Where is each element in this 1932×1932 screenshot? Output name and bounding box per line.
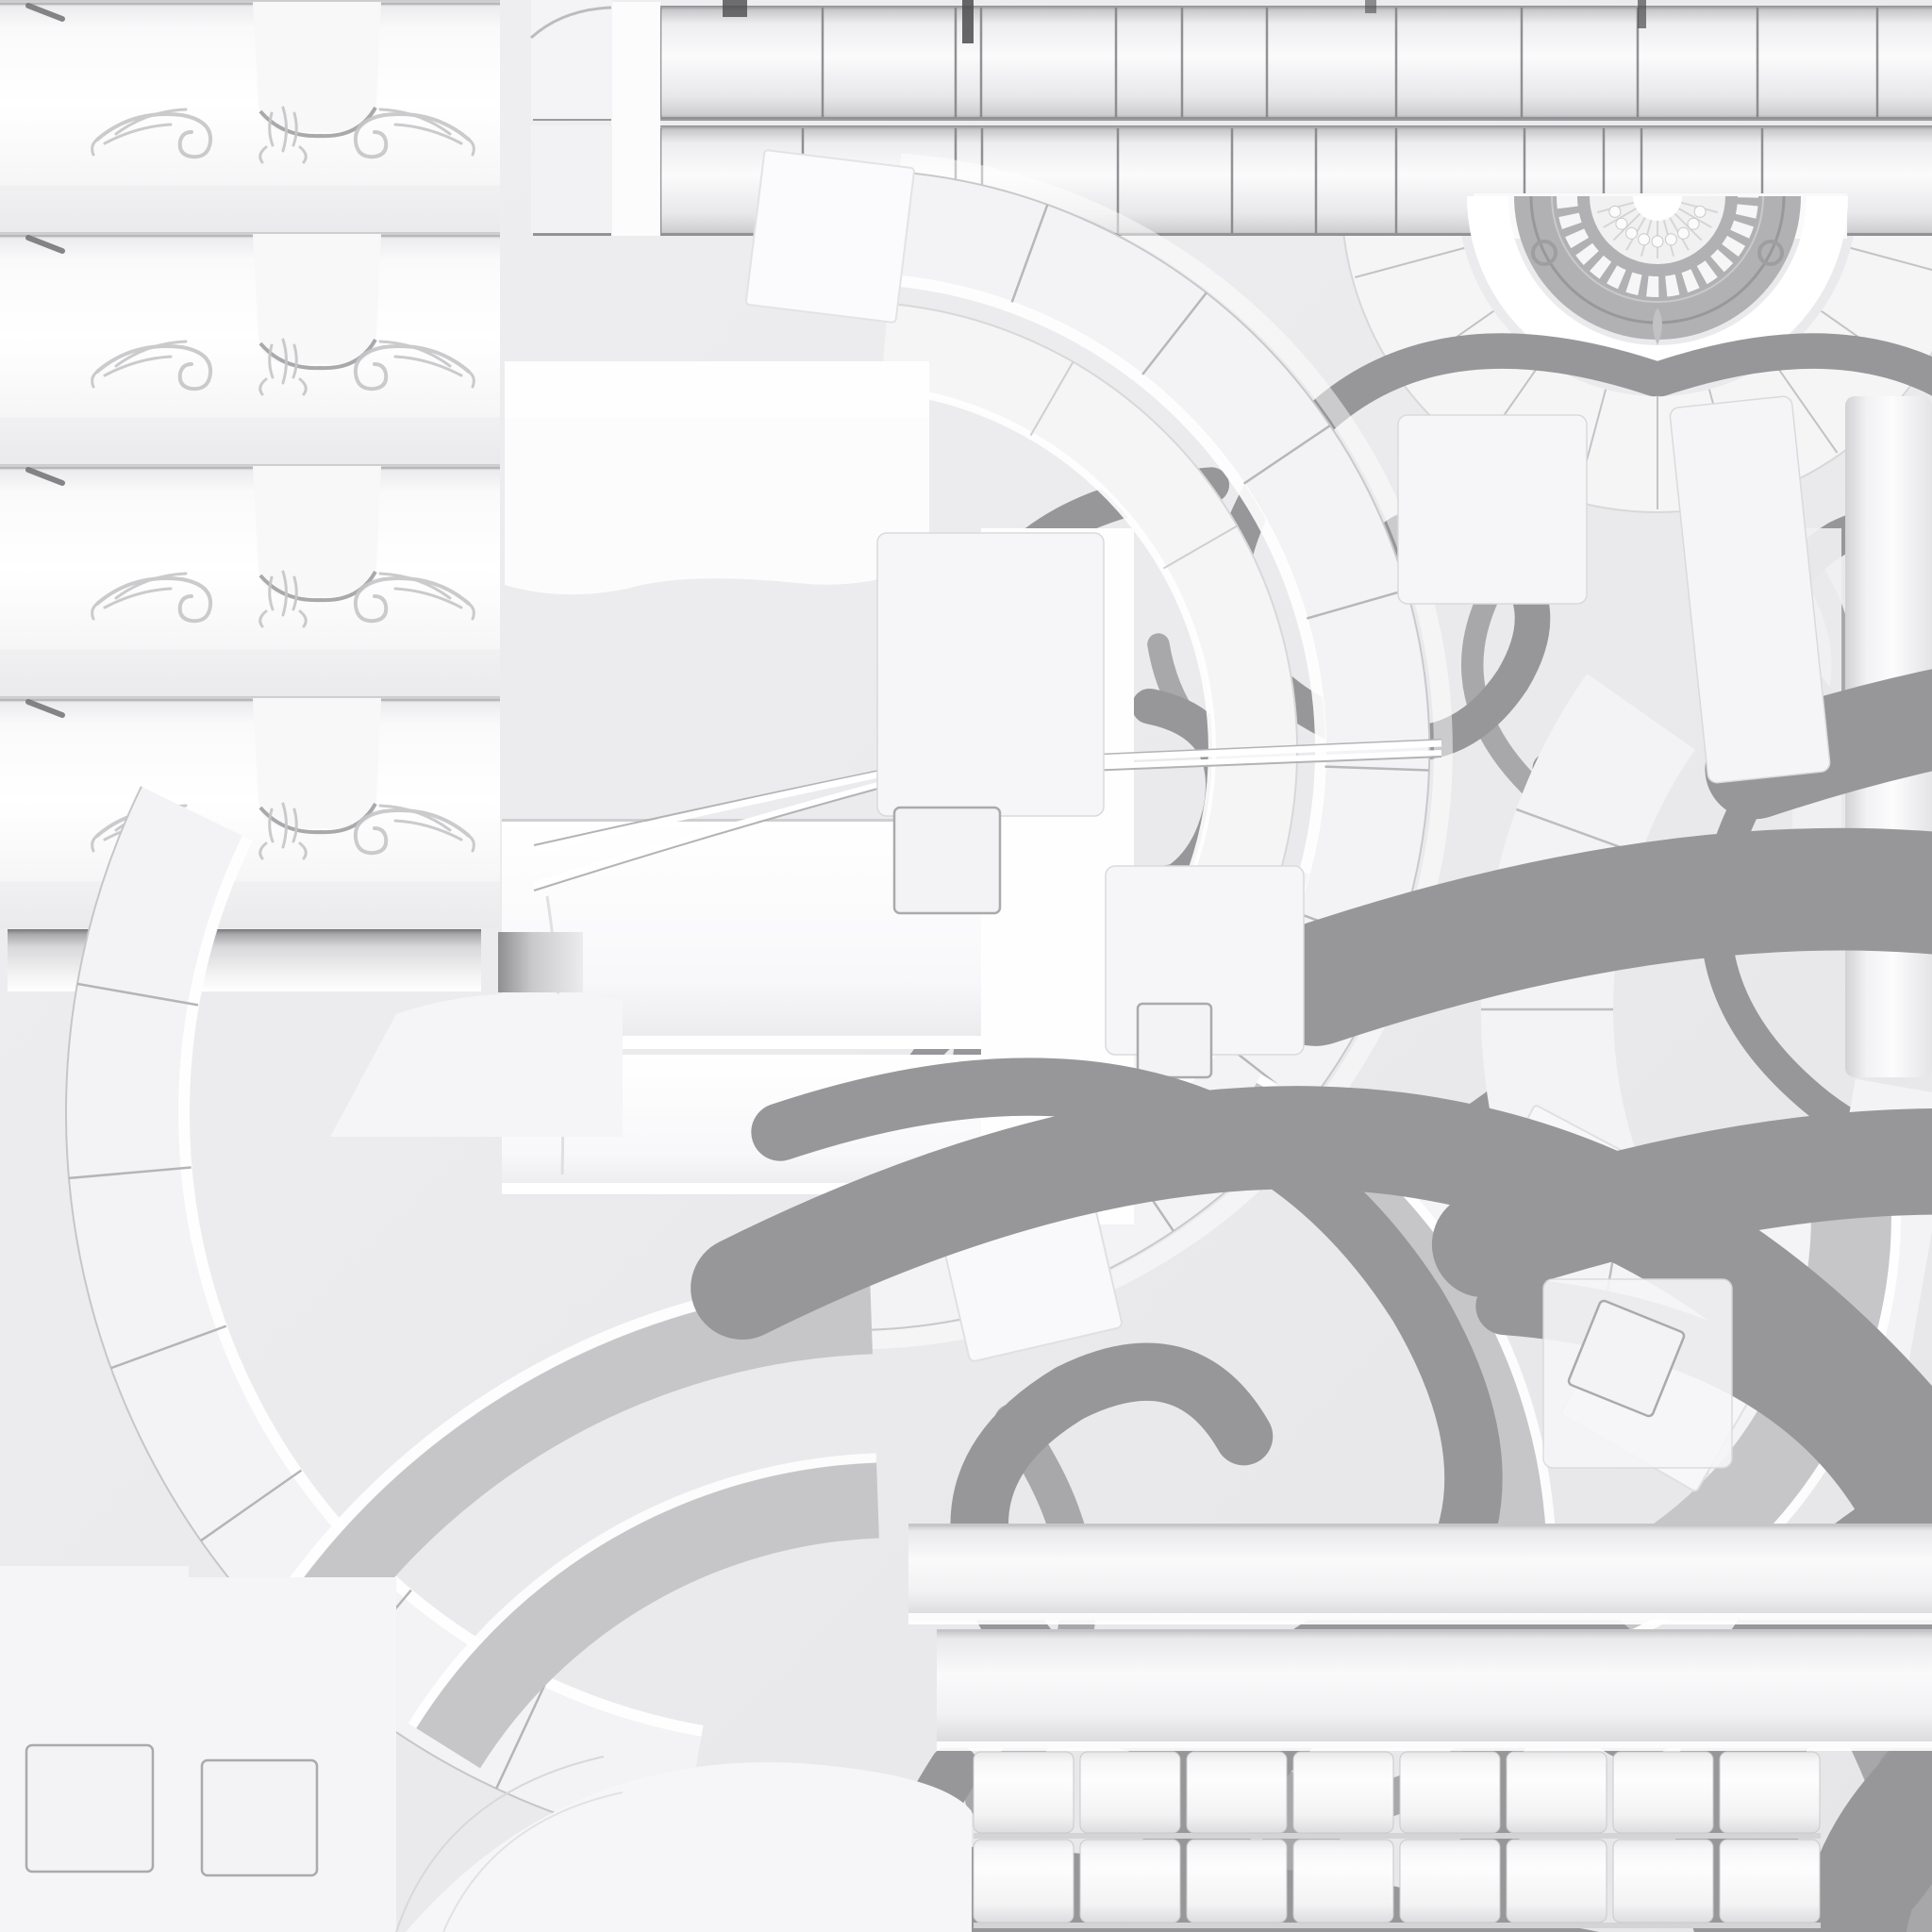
tile-block xyxy=(1613,1752,1713,1833)
ornament-panel xyxy=(877,533,1104,816)
gradient-plate xyxy=(498,932,583,992)
tile-block xyxy=(1507,1752,1607,1833)
tile-block xyxy=(974,1752,1074,1833)
slab-top xyxy=(505,361,929,594)
tile-block xyxy=(1720,1840,1820,1923)
tile-block xyxy=(1080,1840,1180,1923)
tile-block xyxy=(1400,1840,1500,1923)
tile-block xyxy=(1080,1752,1180,1833)
tile-block xyxy=(1507,1840,1607,1923)
cornice-strip xyxy=(0,0,500,232)
corner-block xyxy=(894,808,1000,913)
pipe-row-shadow xyxy=(533,117,1932,121)
ornament-panel xyxy=(1398,415,1587,604)
tile-block xyxy=(1720,1752,1820,1833)
corner-block xyxy=(26,1745,153,1872)
texture-atlas-canvas xyxy=(0,0,1932,1932)
bar-bottom-upper xyxy=(908,1524,1932,1624)
pipe-gap-bright xyxy=(611,2,660,236)
keystone-block xyxy=(745,150,914,323)
tile-block xyxy=(1293,1840,1393,1923)
bar-bottom-lower xyxy=(937,1629,1932,1751)
cornice-strip xyxy=(0,696,500,928)
tile-block xyxy=(1613,1840,1713,1923)
corner-block xyxy=(202,1760,317,1875)
tile-block xyxy=(1400,1752,1500,1833)
cornice-strip xyxy=(0,464,500,696)
ornament-panel xyxy=(179,1577,396,1932)
pipe-row xyxy=(533,6,1932,119)
pipe-left-caps xyxy=(531,0,612,233)
tile-block xyxy=(1187,1752,1287,1833)
tile-block xyxy=(974,1840,1074,1923)
cornice-strip xyxy=(0,232,500,464)
tile-block xyxy=(1187,1840,1287,1923)
corner-block xyxy=(1138,1004,1211,1077)
tile-block xyxy=(1293,1752,1393,1833)
